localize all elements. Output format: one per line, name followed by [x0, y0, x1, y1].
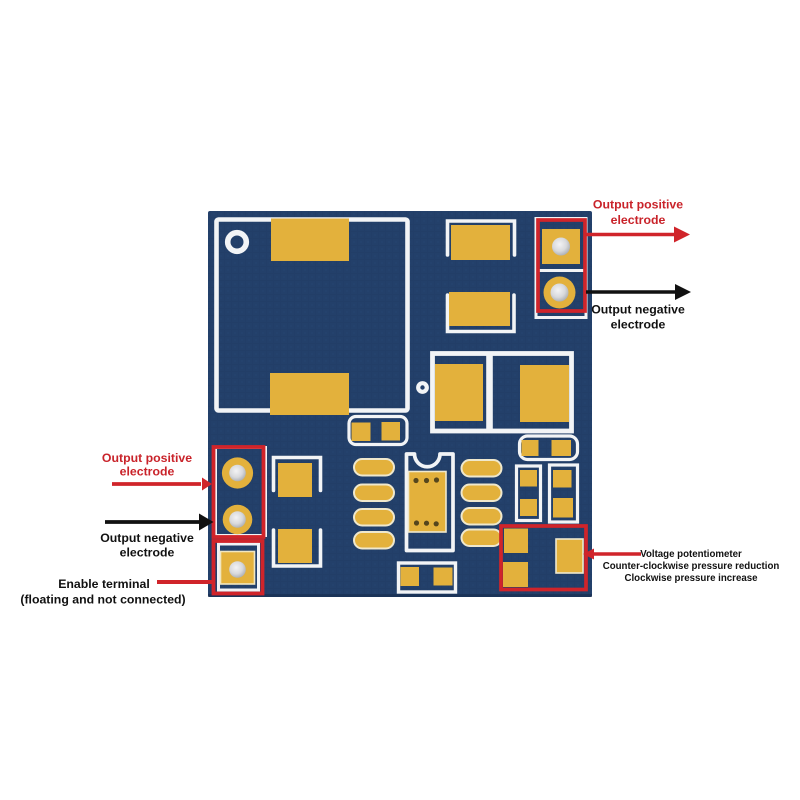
- svg-text:Clockwise pressure increase: Clockwise pressure increase: [624, 573, 758, 584]
- svg-text:Enable terminal: Enable terminal: [58, 577, 150, 591]
- svg-text:Voltage potentiometer: Voltage potentiometer: [640, 549, 742, 560]
- svg-text:electrode: electrode: [611, 213, 666, 227]
- svg-text:(floating and not connected): (floating and not connected): [20, 593, 185, 607]
- svg-text:electrode: electrode: [611, 318, 666, 332]
- svg-text:Counter-clockwise pressure red: Counter-clockwise pressure reduction: [603, 561, 780, 572]
- svg-text:Output negative: Output negative: [100, 531, 194, 545]
- svg-text:electrode: electrode: [120, 546, 175, 560]
- svg-text:Output positive: Output positive: [593, 198, 683, 212]
- svg-text:Output positive: Output positive: [102, 451, 192, 465]
- svg-text:Output negative: Output negative: [591, 303, 685, 317]
- svg-text:electrode: electrode: [120, 465, 175, 479]
